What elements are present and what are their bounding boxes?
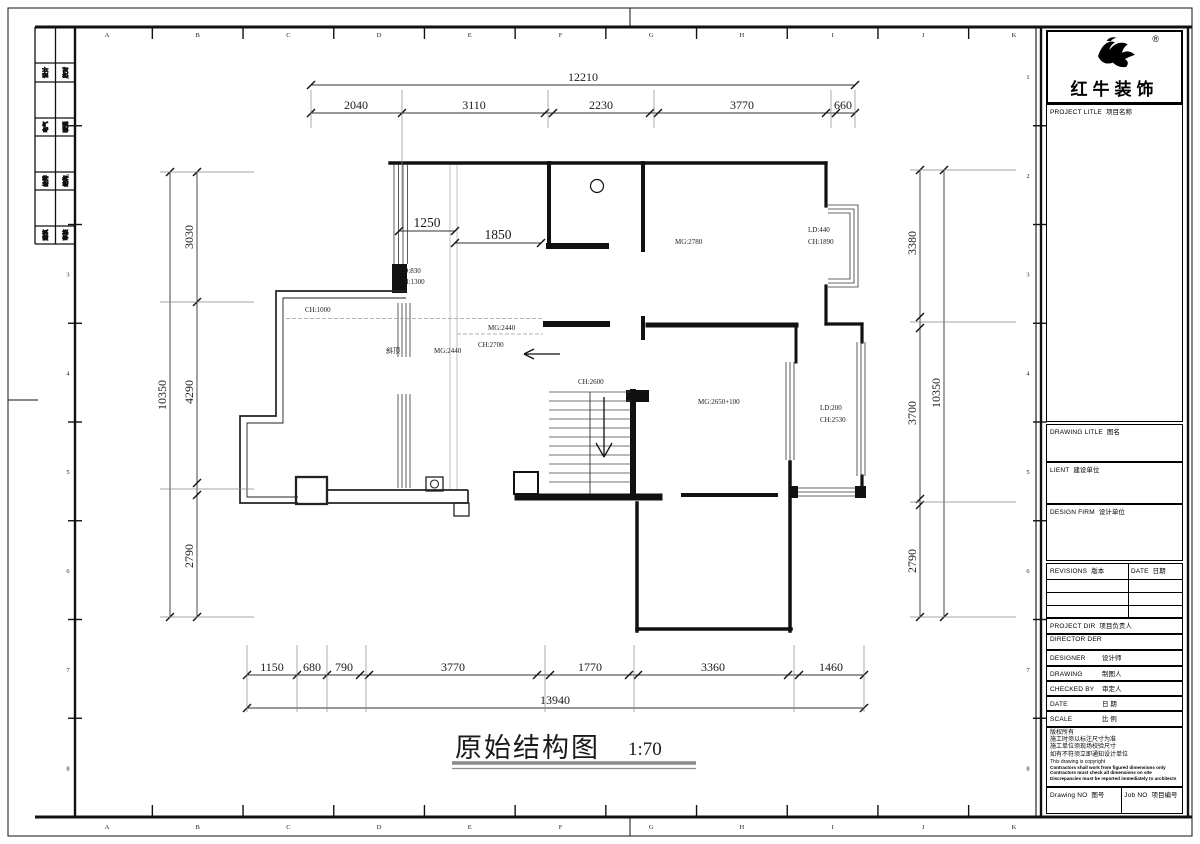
signoff-label: 建筑	[42, 229, 50, 241]
grid-letter: C	[286, 824, 290, 831]
entry-arrow	[524, 349, 560, 359]
window-top-left	[394, 164, 408, 264]
dim-label: 13940	[540, 693, 570, 707]
grid-number: 7	[1026, 667, 1030, 674]
client-box: LIENT 建设单位	[1046, 462, 1183, 504]
label-ch1300: CH:1300	[399, 278, 425, 286]
plan-scale-text: 1:70	[628, 739, 662, 760]
designer-box: DESIGNER 设计师	[1046, 650, 1183, 666]
dim-label: 1460	[819, 660, 843, 674]
dim-label: 2790	[905, 549, 919, 573]
job-no-en: Job NO	[1124, 792, 1147, 799]
label-ld200: LD:200	[820, 404, 842, 412]
dim-label: 2790	[182, 544, 196, 568]
window-midright	[786, 362, 794, 460]
label-ch2600: CH:2600	[578, 378, 604, 386]
ceiling-light	[591, 180, 604, 193]
dim-label: 3770	[730, 98, 754, 112]
grid-number: 3	[66, 272, 69, 279]
grid-letter: H	[740, 32, 745, 39]
label-ch1890: CH:1890	[808, 238, 834, 246]
drawing-no-cn: 图号	[1091, 789, 1104, 799]
drawing-sheet-page: { "sheet": { "grid_cols": ["A","B","C","…	[0, 0, 1200, 844]
label-ld830: LD:830	[399, 267, 421, 275]
revisions-table: REVISIONS 版本 DATE 日期	[1046, 563, 1183, 618]
logo-box: ® 红牛装饰 HONG NIU DECORATION	[1046, 30, 1183, 104]
design-firm-box: DESIGN FIRM 设计单位	[1046, 504, 1183, 561]
director-en: DIRECTOR DER	[1050, 636, 1102, 643]
window-bottom-right	[798, 488, 855, 496]
drawing-no-en: Drawing NO	[1050, 792, 1087, 799]
grid-letter: B	[196, 824, 201, 831]
grid-letter: F	[559, 32, 563, 39]
project-dir-en: PROJECT DIR	[1050, 623, 1095, 630]
dim-label: 3110	[462, 98, 486, 112]
label-ld440: LD:440	[808, 226, 830, 234]
project-label-cn: 项目名称	[1106, 106, 1132, 116]
date-box: DATE 日 期	[1046, 696, 1183, 711]
client-cn: 建设单位	[1073, 464, 1099, 474]
grid-letter: G	[649, 824, 654, 831]
grid-letter: E	[468, 824, 472, 831]
design-firm-cn: 设计单位	[1099, 506, 1125, 516]
copyright-bold-line: Discrepancies must be reported immediate…	[1047, 776, 1182, 782]
dim-label: 2230	[589, 98, 613, 112]
drawing-title-cn: 图名	[1107, 426, 1120, 436]
dim-label: 3360	[701, 660, 725, 674]
grid-number: 1	[1026, 74, 1029, 81]
fixture-circle	[431, 480, 439, 488]
signoff-label: 设计	[42, 67, 50, 79]
grid-letter: D	[377, 824, 382, 831]
job-no-cn: 项目编号	[1152, 789, 1178, 799]
grid-letter: D	[377, 32, 382, 39]
grid-number: 4	[66, 370, 70, 377]
scale-box: SCALE 比 例	[1046, 711, 1183, 727]
project-dir-box: PROJECT DIR 项目负责人	[1046, 618, 1183, 634]
grid-letter: K	[1012, 32, 1017, 39]
date-en: DATE	[1050, 701, 1098, 708]
dim-label: 1150	[260, 660, 284, 674]
grid-letter: E	[468, 32, 472, 39]
border-grid: AABBCCDDEEFFGGHHIIJJKK1122334455667788	[66, 27, 1047, 831]
dim-label: 2040	[344, 98, 368, 112]
grid-number: 4	[1026, 370, 1030, 377]
drawing-title-en: DRAWING LITLE	[1050, 429, 1103, 436]
grid-letter: B	[196, 32, 201, 39]
drawing-by-en: DRAWING	[1050, 671, 1098, 678]
designer-cn: 设计师	[1102, 652, 1122, 662]
numbers-box: Drawing NO 图号 Job NO 项目编号	[1046, 787, 1183, 814]
grid-letter: K	[1012, 824, 1017, 831]
revisions-cn: 版本	[1091, 565, 1104, 575]
window-right-wall	[857, 342, 865, 476]
grid-letter: I	[832, 824, 834, 831]
grid-number: 3	[1026, 272, 1029, 279]
grid-letter: H	[740, 824, 745, 831]
label-sloped-ceiling: 斜顶	[386, 346, 400, 355]
grid-number: 7	[66, 667, 70, 674]
project-title-box: PROJECT LITLE 项目名称	[1046, 104, 1183, 422]
signoff-label: 给排	[42, 175, 50, 187]
bull-logo-icon	[1083, 35, 1147, 69]
dim-label: 660	[834, 98, 852, 112]
grid-number: 8	[1026, 766, 1029, 773]
project-dir-cn: 项目负责人	[1099, 620, 1132, 630]
grid-number: 8	[66, 766, 69, 773]
brand-name: 红牛装饰	[1048, 75, 1181, 100]
signoff-label: 审核	[62, 229, 70, 241]
signoff-label: 电气	[42, 121, 50, 133]
dim-label: 4290	[182, 380, 196, 404]
bay-window-right	[828, 205, 858, 287]
signoff-label: 暖通	[62, 121, 70, 133]
checked-by-box: CHECKED BY 审定人	[1046, 681, 1183, 696]
stair-pillar	[514, 472, 538, 494]
dim-label: 790	[335, 660, 353, 674]
design-firm-en: DESIGN FIRM	[1050, 509, 1095, 516]
registered-mark: ®	[1152, 34, 1159, 44]
grid-number: 5	[1026, 469, 1029, 476]
label-ch2530: CH:2530	[820, 416, 846, 424]
label-mg2780: MG:2780	[675, 238, 703, 246]
label-ch1000: CH:1000	[305, 306, 331, 314]
fixture-box	[426, 477, 443, 491]
dim-label: 3770	[441, 660, 465, 674]
window-left-low	[398, 394, 410, 488]
client-en: LIENT	[1050, 467, 1069, 474]
grid-number: 2	[66, 173, 69, 180]
dim-label: 10350	[155, 380, 169, 410]
dim-label: 680	[303, 660, 321, 674]
scale-en: SCALE	[1050, 716, 1098, 723]
dim-label: 3380	[905, 231, 919, 255]
checked-cn: 审定人	[1102, 683, 1122, 693]
grid-number: 6	[66, 568, 70, 575]
label-ch2700: CH:2700	[478, 341, 504, 349]
copyright-box: 版权所有 施工时须以标注尺寸为准 施工单位须现场校验尺寸 如有不符须立即通知设计…	[1046, 727, 1183, 787]
cad-canvas: 设计校对电气暖通给排结构建筑审核 AABBCCDDEEFFGGHHIIJJKK1…	[0, 0, 1200, 844]
dim-label: 10350	[929, 378, 943, 408]
drawing-title: 原始结构图 1:70	[452, 733, 696, 769]
plan-title-text: 原始结构图	[455, 733, 600, 763]
dim-label: 3700	[905, 401, 919, 425]
copyright-line: 施工单位须现场校验尺寸	[1047, 744, 1182, 751]
label-mg2650: MG:2650+100	[698, 398, 740, 406]
grid-number: 2	[1026, 173, 1029, 180]
dim-label: 3030	[182, 225, 196, 249]
grid-letter: A	[105, 32, 110, 39]
terrace-walls	[240, 291, 469, 516]
drawing-by-cn: 制图人	[1102, 668, 1122, 678]
grid-letter: C	[286, 32, 290, 39]
dim-label: 1770	[578, 660, 602, 674]
grid-letter: J	[922, 824, 925, 831]
label-mg2440-b: MG:2440	[488, 324, 516, 332]
scale-cn: 比 例	[1102, 713, 1117, 723]
drawing-title-box: DRAWING LITLE 图名	[1046, 424, 1183, 462]
dim-label: 1250	[414, 215, 441, 230]
checked-en: CHECKED BY	[1050, 686, 1098, 693]
dim-label: 12210	[568, 70, 598, 84]
sheet-frame	[8, 8, 1192, 836]
dim-label: 1850	[485, 227, 512, 242]
grid-letter: A	[105, 824, 110, 831]
designer-en: DESIGNER	[1050, 655, 1098, 662]
date-cn: 日 期	[1102, 698, 1117, 708]
stair-down-arrow	[596, 397, 612, 457]
grid-letter: F	[559, 824, 563, 831]
grid-number: 1	[66, 74, 69, 81]
grid-letter: G	[649, 32, 654, 39]
dimensions: 1221020403110223037706601250185011506807…	[155, 70, 1016, 712]
signoff-strip: 设计校对电气暖通给排结构建筑审核	[35, 27, 75, 244]
rev-date-cn: 日期	[1153, 565, 1166, 575]
floor-plan: CH:1000 LD:830 CH:1300 斜顶 MG:2440 MG:244…	[240, 163, 866, 631]
rev-date-en: DATE	[1131, 568, 1149, 575]
grid-letter: I	[832, 32, 834, 39]
grid-number: 6	[1026, 568, 1030, 575]
drawing-by-box: DRAWING 制图人	[1046, 666, 1183, 681]
stairs	[514, 392, 631, 494]
revisions-en: REVISIONS	[1050, 568, 1087, 575]
project-label-en: PROJECT LITLE	[1050, 109, 1102, 116]
copyright-line: 如有不符须立即通知设计单位	[1047, 752, 1182, 759]
label-mg2440-a: MG:2440	[434, 347, 462, 355]
grid-number: 5	[66, 469, 69, 476]
grid-letter: J	[922, 32, 925, 39]
director-box: DIRECTOR DER	[1046, 634, 1183, 650]
